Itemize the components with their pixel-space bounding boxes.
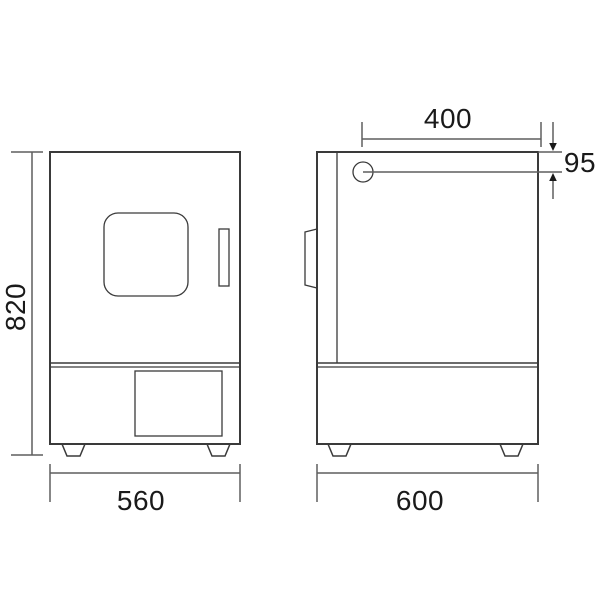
dim-height-label: 820 (0, 283, 31, 331)
down-arrowhead-icon (549, 143, 557, 151)
dim-port-v-label: 95 (564, 147, 596, 178)
front-foot-left (62, 444, 85, 456)
front-door-handle (219, 229, 229, 286)
side-door-handle (305, 229, 317, 288)
front-body (50, 152, 240, 444)
dimension-drawing: 820 560 600 400 (0, 0, 600, 600)
side-foot-right (500, 444, 523, 456)
side-foot-left (328, 444, 351, 456)
dimension-depth: 600 (317, 464, 538, 516)
front-door-window (104, 213, 188, 296)
dimension-drawing-canvas: 820 560 600 400 (0, 0, 600, 600)
side-view (305, 152, 538, 456)
dim-depth-label: 600 (396, 485, 444, 516)
front-view (50, 152, 240, 456)
dim-port-h-label: 400 (424, 103, 472, 134)
dimension-width: 560 (50, 464, 240, 516)
up-arrowhead-icon (549, 173, 557, 181)
front-control-panel (135, 371, 222, 436)
dimension-port-vertical: 95 (363, 122, 596, 199)
front-foot-right (207, 444, 230, 456)
side-body (317, 152, 538, 444)
dimension-port-horizontal: 400 (362, 103, 541, 147)
dimension-height: 820 (0, 152, 43, 455)
dim-width-label: 560 (117, 485, 165, 516)
